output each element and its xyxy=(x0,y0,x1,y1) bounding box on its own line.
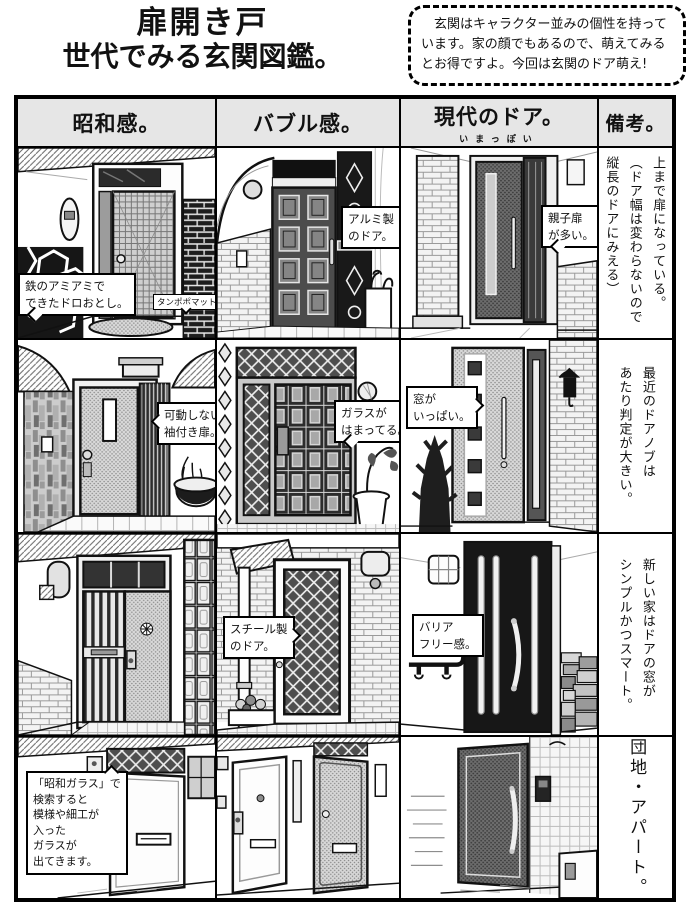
panel-row2-modern: 窓がいっぱい。 xyxy=(400,339,598,533)
note-row3: 新しい家はドアの窓がシンプルかつスマート。 xyxy=(598,533,673,736)
callout-aluminum-door: アルミ製のドア。 xyxy=(341,206,400,249)
intro-note: 玄関はキャラクター並みの個性を持っています。家の顔でもあるので、萌えてみるとお得… xyxy=(408,5,686,86)
panel-row3-bubble: スチール製のドア。 xyxy=(216,533,400,736)
column-header-modern: 現代のドア。 いまっぽい xyxy=(400,98,598,147)
panel-row1-modern: 親子扉が多い。 xyxy=(400,147,598,339)
header-label: 現代のドア。 xyxy=(434,101,564,131)
header-furigana: いまっぽい xyxy=(459,132,539,145)
callout-showa-glass: 「昭和ガラス」で検索すると模様や細工が入ったガラスが出てきます。 xyxy=(26,771,128,875)
note-text: 今どきの玄関は上の小窓がなく、上まで扉になっている。（ドア幅は変わらないので縦長… xyxy=(599,156,673,338)
callout-text: 親子扉が多い。 xyxy=(548,211,594,242)
page-title-line1: 扉開き戸 xyxy=(0,6,405,41)
panel-row1-showa: 鉄のアミアミでできたドロおとし。 タンポポマット xyxy=(17,147,216,339)
entrance-comparison-table: 昭和感。 バブル感。 現代のドア。 いまっぽい 備考。 xyxy=(14,95,676,902)
callout-mud-scraper: 鉄のアミアミでできたドロおとし。 xyxy=(18,273,136,316)
note-text: 新しい家はドアの窓がシンプルかつスマート。 xyxy=(612,558,659,712)
header-label: 備考。 xyxy=(605,109,665,136)
callout-glass-fitted: ガラスがはまってる。 xyxy=(334,400,400,443)
column-header-note: 備考。 xyxy=(598,98,673,147)
callout-many-windows: 窓がいっぱい。 xyxy=(406,386,478,429)
panel-row3-modern: バリアフリー感。 xyxy=(400,533,598,736)
panel-row4-bubble xyxy=(216,736,400,899)
callout-barrier-free: バリアフリー感。 xyxy=(412,614,484,657)
callout-text: 窓がいっぱい。 xyxy=(413,392,471,423)
tag-dandelion-mat: タンポポマット xyxy=(153,294,216,310)
note-row2: 最近のドアノブはあたり判定が大きい。 xyxy=(598,339,673,533)
panel-row1-bubble: アルミ製のドア。 xyxy=(216,147,400,339)
panel-row3-showa xyxy=(17,533,216,736)
note-text: 団地・アパート。 xyxy=(622,738,649,898)
showa-barred-screen-door-illustration xyxy=(18,534,215,735)
column-header-bubble: バブル感。 xyxy=(216,98,400,147)
panel-row4-showa: 「昭和ガラス」で検索すると模様や細工が入ったガラスが出てきます。 xyxy=(17,736,216,899)
manga-page: 扉開き戸 世代でみる玄関図鑑。 玄関はキャラクター並みの個性を持っています。家の… xyxy=(0,0,690,918)
note-row4: 団地・アパート。 xyxy=(598,736,673,899)
callout-text: アルミ製のドア。 xyxy=(348,212,394,243)
callout-fixed-side-panel: 可動しない袖付き扉。 xyxy=(157,402,216,445)
note-text: 最近のドアノブはあたり判定が大きい。 xyxy=(612,366,659,506)
header-label: 昭和感。 xyxy=(73,108,161,138)
callout-text: ガラスがはまってる。 xyxy=(341,406,400,437)
column-header-showa: 昭和感。 xyxy=(17,98,216,147)
callout-text: 可動しない袖付き扉。 xyxy=(164,408,216,439)
header-label: バブル感。 xyxy=(253,108,363,138)
page-title-line2: 世代でみる玄関図鑑。 xyxy=(0,41,405,72)
callout-text: スチール製のドア。 xyxy=(230,622,288,653)
modern-many-windows-door-illustration xyxy=(401,340,597,532)
page-title: 扉開き戸 世代でみる玄関図鑑。 xyxy=(0,6,405,72)
callout-text: 鉄のアミアミでできたドロおとし。 xyxy=(25,279,129,310)
panel-row4-modern xyxy=(400,736,598,899)
callout-steel-door: スチール製のドア。 xyxy=(223,616,295,659)
bubble-apartment-doors-illustration xyxy=(217,737,399,898)
panel-row2-showa: 可動しない袖付き扉。 xyxy=(17,339,216,533)
callout-text: バリアフリー感。 xyxy=(419,620,477,651)
callout-parent-child-door: 親子扉が多い。 xyxy=(541,205,598,248)
modern-apartment-door-illustration xyxy=(401,737,597,898)
panel-row2-bubble: ガラスがはまってる。 xyxy=(216,339,400,533)
callout-text: 「昭和ガラス」で検索すると模様や細工が入ったガラスが出てきます。 xyxy=(33,777,121,868)
note-row1: 今どきの玄関は上の小窓がなく、上まで扉になっている。（ドア幅は変わらないので縦長… xyxy=(598,147,673,339)
